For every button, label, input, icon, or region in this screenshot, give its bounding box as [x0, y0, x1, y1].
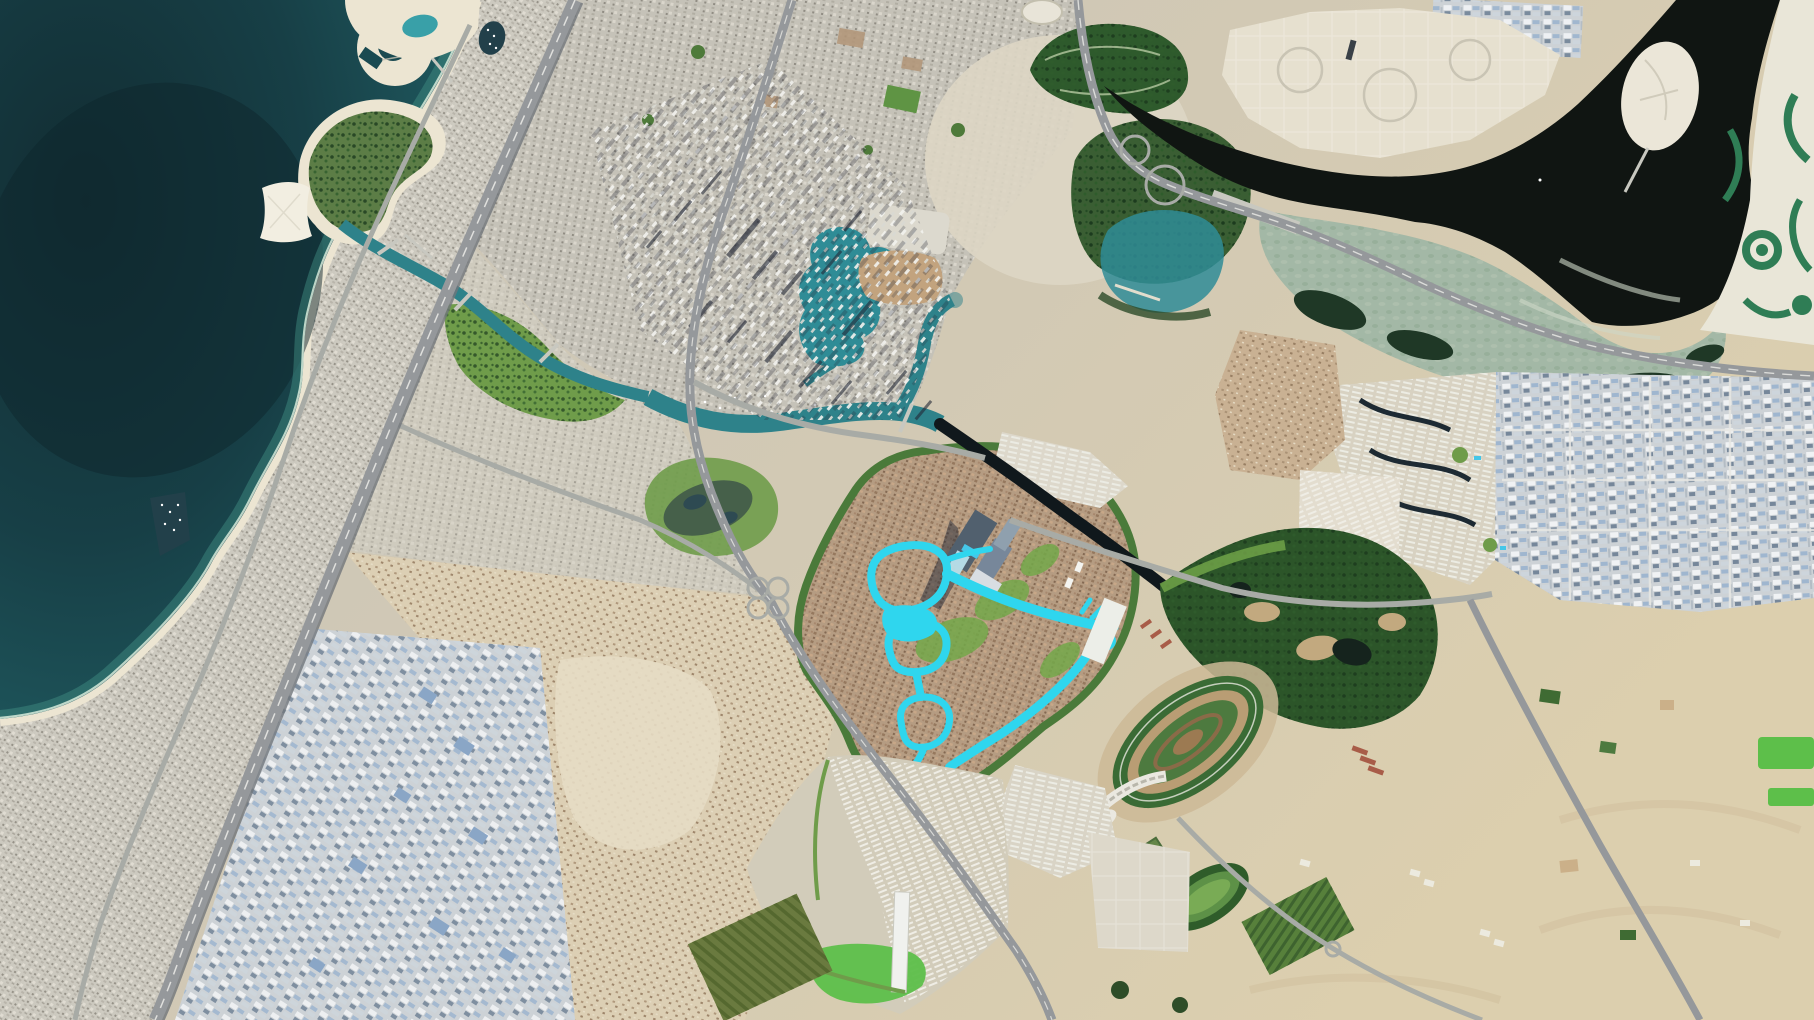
- industrial-grid: [1495, 372, 1814, 612]
- satellite-map-view[interactable]: [0, 0, 1814, 1020]
- stadium-oval: [1022, 0, 1062, 24]
- villa-community-se: [1088, 832, 1190, 952]
- butterfly-island: [260, 182, 312, 242]
- park-pond: [645, 458, 778, 557]
- long-white-building: [891, 892, 909, 992]
- empty-lots: [555, 656, 720, 849]
